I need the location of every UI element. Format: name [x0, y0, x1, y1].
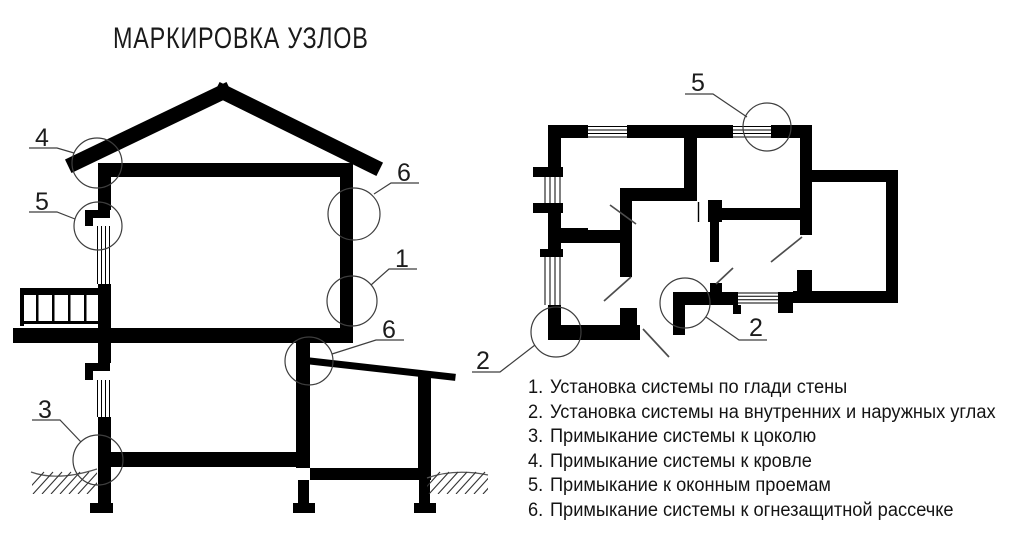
top-window-1 — [588, 127, 627, 138]
footings — [90, 480, 436, 513]
architectural-sheet: МАРКИРОВКА УЗЛОВ — [0, 0, 1024, 553]
left-window-2 — [545, 257, 560, 305]
legend-item-text: Примыкание системы к кровле — [550, 451, 812, 472]
legend: 1.Установка системы по глади стены 2.Уст… — [528, 376, 996, 524]
marker-label-3: 3 — [38, 396, 52, 424]
top-window-2 — [733, 127, 771, 138]
balcony-railing — [20, 288, 98, 326]
legend-item-text: Примыкание системы к огнезащитной рассеч… — [550, 500, 954, 521]
marker-label-plan-2-outer: 2 — [476, 347, 490, 375]
marker-plan-window-node: 5 — [685, 69, 791, 151]
legend-item-text: Установка системы на внутренних и наружн… — [550, 402, 996, 423]
legend-item: 4.Примыкание системы к кровле — [528, 450, 996, 475]
legend-item: 5.Примыкание к оконным проемам — [528, 474, 996, 499]
legend-item-number: 6. — [528, 499, 543, 524]
marker-outer-corner-node: 2 — [472, 307, 581, 375]
legend-item: 1.Установка системы по глади стены — [528, 376, 996, 401]
legend-item-number: 4. — [528, 450, 543, 475]
upper-window — [98, 226, 110, 284]
marker-label-6-top: 6 — [397, 159, 411, 187]
legend-item-number: 2. — [528, 401, 543, 426]
marker-label-plan-5: 5 — [691, 69, 705, 97]
lower-window — [98, 380, 110, 417]
marker-label-1: 1 — [395, 245, 409, 273]
legend-item-text: Установка системы по глади стены — [550, 377, 847, 398]
left-window-1 — [545, 177, 560, 203]
legend-item-number: 1. — [528, 376, 543, 401]
legend-item: 6.Примыкание системы к огнезащитной расс… — [528, 499, 996, 524]
marker-label-6-mid: 6 — [382, 316, 396, 344]
section-markers: 4 5 3 6 1 — [29, 124, 419, 485]
marker-label-5: 5 — [35, 188, 49, 216]
floor-plan — [533, 125, 898, 357]
legend-item-number: 5. — [528, 474, 543, 499]
ground-hatch-right — [420, 472, 503, 494]
legend-item-number: 3. — [528, 425, 543, 450]
bottom-window — [738, 293, 778, 303]
legend-item-text: Примыкание системы к цоколю — [550, 426, 816, 447]
annex — [296, 343, 452, 480]
ground-hatch-left — [24, 469, 107, 494]
legend-item: 2.Установка системы на внутренних и нару… — [528, 401, 996, 426]
legend-item: 3.Примыкание системы к цоколю — [528, 425, 996, 450]
gable-roof — [75, 92, 373, 166]
building-section — [13, 92, 503, 513]
marker-label-4: 4 — [35, 124, 49, 152]
marker-label-plan-2-inner: 2 — [749, 314, 763, 342]
legend-item-text: Примыкание к оконным проемам — [550, 475, 831, 496]
